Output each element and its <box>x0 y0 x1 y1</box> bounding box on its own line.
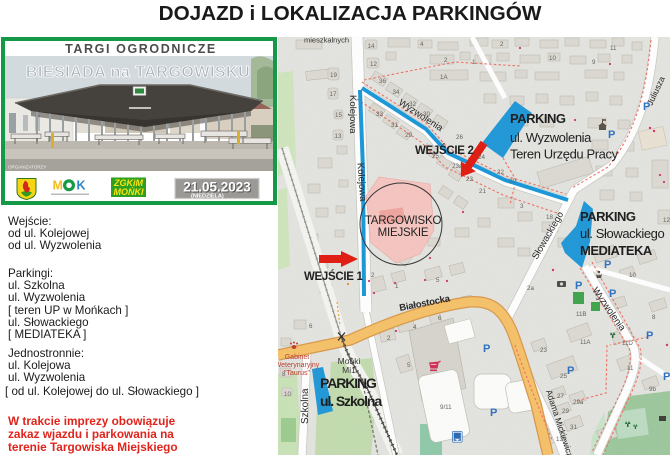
svg-text:M: M <box>53 179 63 193</box>
svg-text:ORGANIZATORZY: ORGANIZATORZY <box>8 165 46 170</box>
svg-text:K: K <box>77 179 86 193</box>
svg-text:(NIEDZIELA): (NIEDZIELA) <box>191 194 224 200</box>
svg-text:21.05.2023: 21.05.2023 <box>183 180 251 195</box>
svg-text:TARGI OGRODNICZE: TARGI OGRODNICZE <box>65 42 217 56</box>
svg-text:MOŃKI: MOŃKI <box>114 186 144 197</box>
svg-text:BIESIADA na TARGOWISKU: BIESIADA na TARGOWISKU <box>26 64 250 81</box>
